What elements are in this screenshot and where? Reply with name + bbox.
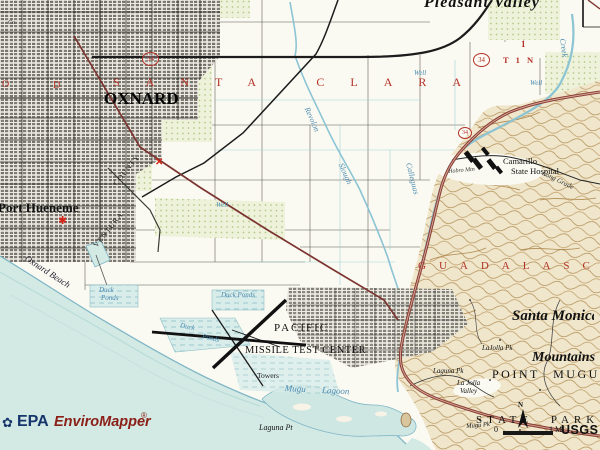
label-grant-d: D: [53, 81, 60, 91]
north-label: N: [518, 402, 523, 409]
label-point-mugu: POINT MUGU: [492, 368, 600, 380]
label-towers: Towers: [257, 372, 279, 380]
registered-mark: ®: [141, 412, 147, 420]
usgs-logo: USGS: [561, 424, 598, 437]
label-guadalasca: GUADALASCA: [418, 261, 600, 272]
route-34-shield-east: 34: [473, 53, 490, 67]
epa-flower-icon: ✿: [2, 416, 13, 429]
epa-site-marker-x-icon: ✕: [155, 158, 163, 168]
label-ponds-1: Ponds: [101, 295, 119, 302]
label-camarillo: Camarillo: [503, 157, 537, 166]
label-santa-clara: SANTA CLARA: [113, 76, 487, 88]
label-creek: Creek: [558, 38, 569, 58]
label-port-hueneme: Port Hueneme: [0, 201, 79, 214]
label-grant-o: O: [2, 80, 9, 90]
enviromapper-logo-text: EnviroMapper: [54, 415, 151, 430]
label-well-1: Well: [216, 202, 228, 209]
label-missile-test-center: MISSILE TEST CENTER: [245, 346, 366, 357]
label-duck-1: Duck: [99, 287, 114, 294]
route-34-shield-small: 34: [458, 127, 472, 139]
label-mountains: Mountains: [532, 351, 598, 365]
label-laguna-pk: Laguna Pk: [433, 368, 464, 375]
label-oxnard: OXNARD: [104, 90, 179, 107]
label-pacific: PACIFIC: [274, 323, 329, 334]
scale-bar: [503, 431, 553, 435]
epa-logo-text: EPA: [17, 414, 49, 430]
label-well-3: Well: [530, 80, 542, 87]
label-co-fragment: Co: [8, 20, 15, 26]
label-section-1: 1: [521, 40, 526, 49]
map-canvas[interactable]: Co Pleasant Valley O D SANTA CLARA OXNAR…: [0, 0, 600, 450]
label-t1n: T 1 N: [503, 56, 536, 65]
label-duck-ponds-2: Duck Ponds: [221, 292, 255, 299]
epa-site-marker-star-icon: ✱: [58, 216, 67, 227]
label-pleasant-valley: Pleasant Valley: [424, 0, 540, 11]
label-laguna-pt: Laguna Pt: [259, 424, 293, 432]
label-well-2: Well: [414, 70, 426, 77]
label-santa-monica: Santa Monica: [512, 309, 594, 324]
topo-basemap: [0, 0, 600, 450]
label-valley: Valley: [460, 388, 477, 395]
route-34-shield-west: 34: [142, 52, 159, 66]
scale-zero: 0: [494, 426, 498, 434]
label-lajolla-pk: LaJolla Pk: [482, 345, 513, 352]
label-la-jolla: La Jolla: [457, 380, 480, 387]
